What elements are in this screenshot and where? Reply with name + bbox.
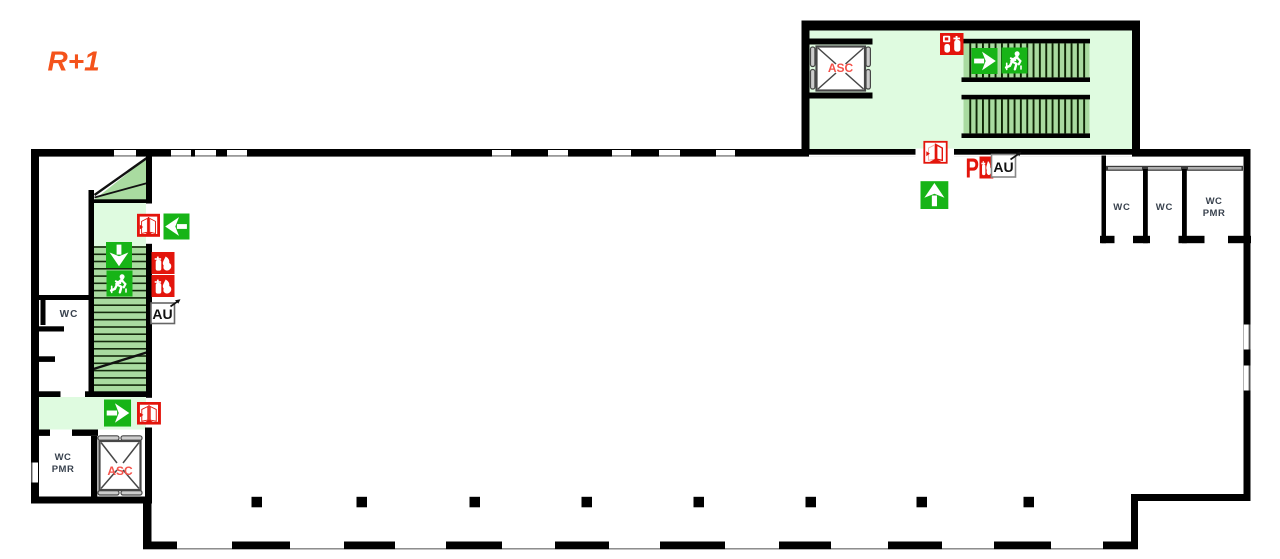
svg-text:AU: AU bbox=[152, 306, 172, 322]
svg-text:AU: AU bbox=[993, 159, 1013, 175]
svg-text:PMR: PMR bbox=[52, 464, 75, 475]
svg-text:ASC: ASC bbox=[828, 61, 854, 75]
svg-text:R+1: R+1 bbox=[48, 46, 100, 77]
svg-text:PMR: PMR bbox=[1203, 208, 1226, 219]
svg-text:WC: WC bbox=[60, 309, 79, 320]
svg-text:WC: WC bbox=[1113, 202, 1130, 213]
svg-text:WC: WC bbox=[1206, 196, 1223, 207]
svg-text:P: P bbox=[966, 153, 979, 184]
svg-text:ASC: ASC bbox=[107, 464, 133, 478]
svg-text:WC: WC bbox=[1156, 202, 1173, 213]
svg-text:WC: WC bbox=[55, 452, 72, 463]
